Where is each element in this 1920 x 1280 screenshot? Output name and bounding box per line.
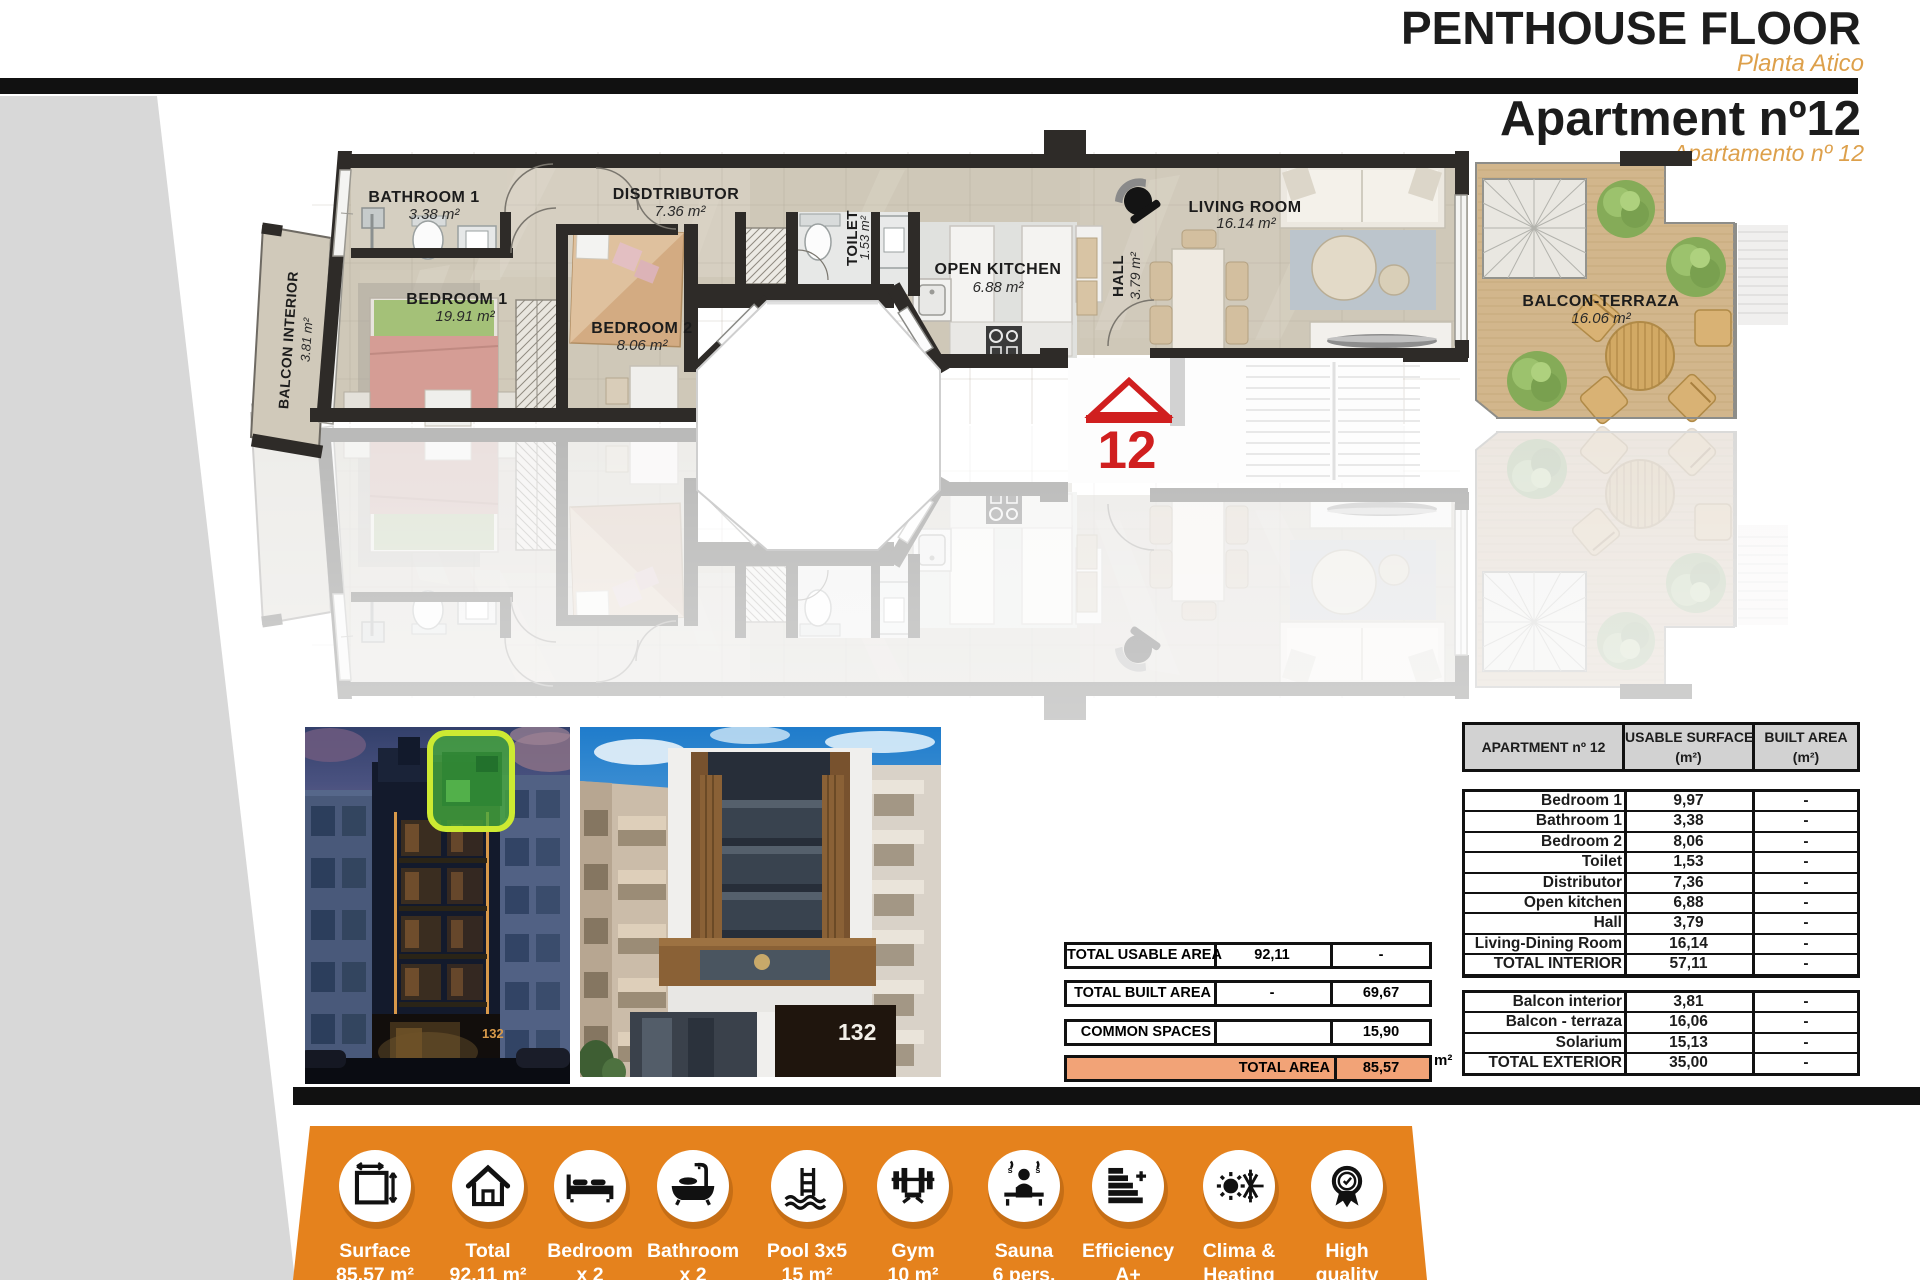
svg-text:Surface: Surface [339, 1240, 411, 1262]
svg-text:Bathroom: Bathroom [647, 1240, 739, 1262]
svg-text:Heating: Heating [1203, 1264, 1275, 1280]
svg-text:quality: quality [1316, 1264, 1379, 1280]
svg-text:s: s [1008, 1165, 1013, 1175]
svg-text:Efficiency: Efficiency [1082, 1240, 1174, 1262]
svg-text:10 m²: 10 m² [888, 1264, 939, 1280]
svg-text:A+: A+ [1115, 1264, 1140, 1280]
svg-text:High: High [1325, 1240, 1368, 1262]
svg-text:Pool 3x5: Pool 3x5 [767, 1240, 847, 1262]
svg-text:Gym: Gym [891, 1240, 934, 1262]
svg-text:s: s [1035, 1165, 1040, 1175]
svg-text:Sauna: Sauna [995, 1240, 1054, 1262]
svg-text:85,57 m²: 85,57 m² [336, 1264, 415, 1280]
svg-text:6 pers.: 6 pers. [993, 1264, 1056, 1280]
svg-text:x 2: x 2 [679, 1264, 706, 1280]
svg-text:Bedroom: Bedroom [547, 1240, 633, 1262]
svg-text:92,11 m²: 92,11 m² [450, 1264, 527, 1280]
svg-text:Total: Total [465, 1240, 510, 1262]
svg-text:Clima &: Clima & [1203, 1240, 1276, 1262]
svg-text:x 2: x 2 [576, 1264, 603, 1280]
svg-text:15 m²: 15 m² [782, 1264, 833, 1280]
